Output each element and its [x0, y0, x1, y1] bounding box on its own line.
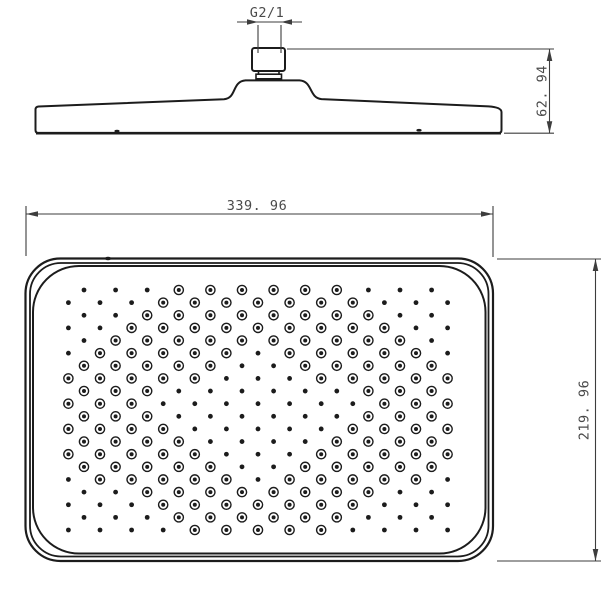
spray-nozzle-dot [429, 338, 434, 343]
depth-arrow-top [593, 259, 599, 271]
spray-nozzle-ring-center [177, 465, 181, 469]
spray-nozzle-dot [145, 515, 150, 520]
spray-nozzle-dot [303, 389, 308, 394]
spray-nozzle-ring-center [446, 427, 450, 431]
spray-nozzle-dot [287, 401, 292, 406]
spray-nozzle-dot [161, 528, 166, 533]
spray-nozzle-dot [366, 288, 371, 293]
spray-nozzle-dot [429, 490, 434, 495]
spray-nozzle-ring-center [240, 313, 244, 317]
spray-nozzle-ring-center [161, 427, 165, 431]
spray-nozzle-ring-center [288, 326, 292, 330]
spray-nozzle-ring-center [319, 528, 323, 532]
spray-nozzle-dot [271, 464, 276, 469]
spray-nozzle-ring-center [319, 477, 323, 481]
spray-nozzle-ring-center [161, 477, 165, 481]
spray-nozzle-ring-center [335, 339, 339, 343]
spray-nozzle-dot [398, 313, 403, 318]
spray-nozzle-ring-center [82, 389, 86, 393]
spray-nozzle-dot [334, 389, 339, 394]
spray-nozzle-dot [129, 528, 134, 533]
spray-nozzle-ring-center [256, 326, 260, 330]
spray-nozzle-ring-center [161, 452, 165, 456]
spray-nozzle-ring-center [351, 326, 355, 330]
width-arrow-right [481, 211, 493, 217]
spray-nozzle-ring-center [130, 376, 134, 380]
plan-view [26, 257, 494, 561]
spray-nozzle-ring-center [224, 477, 228, 481]
spray-nozzle-ring-center [66, 376, 70, 380]
spray-nozzle-dot [113, 313, 118, 318]
spray-nozzle-ring-center [272, 490, 276, 494]
spray-nozzle-dot [398, 490, 403, 495]
spray-nozzle-dot [129, 502, 134, 507]
spray-nozzle-ring-center [145, 414, 149, 418]
spray-nozzle-ring-center [288, 477, 292, 481]
spray-nozzle-ring-center [208, 364, 212, 368]
spray-nozzle-ring-center [193, 326, 197, 330]
spray-nozzle-dot [66, 528, 71, 533]
spray-nozzle-ring-center [145, 389, 149, 393]
spray-nozzle-ring-center [414, 452, 418, 456]
spray-nozzle-dot [208, 389, 213, 394]
spray-nozzle-dot [224, 452, 229, 457]
spray-nozzle-ring-center [161, 326, 165, 330]
spray-nozzle-ring-center [446, 402, 450, 406]
spray-nozzle-ring-center [224, 351, 228, 355]
spray-nozzle-ring-center [335, 465, 339, 469]
spray-nozzle-ring-center [98, 477, 102, 481]
spray-nozzle-dot [366, 515, 371, 520]
spray-nozzle-dot [429, 515, 434, 520]
spray-nozzle-dot [240, 389, 245, 394]
spray-nozzle-dot [287, 427, 292, 432]
spray-nozzle-ring-center [193, 301, 197, 305]
spray-nozzle-ring-center [398, 414, 402, 418]
width-arrow-left [26, 211, 38, 217]
spray-nozzle-dot [414, 502, 419, 507]
spray-nozzle-ring-center [351, 452, 355, 456]
spray-nozzle-ring-center [446, 452, 450, 456]
spray-nozzle-ring-center [288, 503, 292, 507]
spray-nozzle-dot [445, 300, 450, 305]
spray-nozzle-dot [224, 376, 229, 381]
spray-nozzle-dot [240, 414, 245, 419]
spray-nozzle-ring-center [114, 465, 118, 469]
connector-collar-lower [256, 74, 282, 79]
spray-nozzle-ring-center [351, 503, 355, 507]
spray-nozzle-ring-center [382, 427, 386, 431]
spray-nozzle-ring-center [366, 440, 370, 444]
spray-nozzle-dot [256, 427, 261, 432]
spray-nozzle-ring-center [224, 326, 228, 330]
spray-nozzle-ring-center [145, 364, 149, 368]
spray-nozzle-ring-center [208, 313, 212, 317]
spray-nozzle-ring-center [224, 301, 228, 305]
spray-nozzle-ring-center [303, 465, 307, 469]
spray-nozzle-ring-center [303, 313, 307, 317]
spray-nozzle-ring-center [256, 301, 260, 305]
spray-nozzle-dot [113, 288, 118, 293]
spray-nozzle-ring-center [430, 465, 434, 469]
spray-nozzle-dot [256, 376, 261, 381]
spray-nozzle-ring-center [303, 288, 307, 292]
spray-nozzle-ring-center [114, 440, 118, 444]
spray-nozzle-dot [414, 325, 419, 330]
spray-nozzle-ring-center [303, 515, 307, 519]
spray-nozzle-dot [82, 288, 87, 293]
spray-nozzle-dot [350, 401, 355, 406]
spray-nozzle-ring-center [98, 427, 102, 431]
height-arrow-bottom [547, 121, 553, 133]
spray-nozzle-ring-center [430, 414, 434, 418]
spray-nozzle-ring-center [114, 389, 118, 393]
spray-nozzle-ring-center [193, 528, 197, 532]
spray-nozzle-dot [382, 300, 387, 305]
spray-nozzle-dot [429, 288, 434, 293]
spray-nozzle-ring-center [414, 376, 418, 380]
spray-nozzle-ring-center [398, 339, 402, 343]
spray-nozzle-ring-center [366, 364, 370, 368]
spray-nozzle-dot [66, 502, 71, 507]
spray-nozzle-ring-center [177, 490, 181, 494]
spray-nozzle-ring-center [351, 376, 355, 380]
spray-nozzle-ring-center [303, 364, 307, 368]
spray-nozzle-ring-center [272, 313, 276, 317]
spray-nozzle-ring-center [398, 440, 402, 444]
dimension-depth: 219. 96 [497, 259, 601, 561]
spray-nozzle-ring-center [351, 351, 355, 355]
spray-nozzle-dot [240, 464, 245, 469]
spray-nozzle-ring-center [272, 515, 276, 519]
spray-nozzle-dot [66, 325, 71, 330]
spray-nozzle-ring-center [366, 414, 370, 418]
spray-nozzle-ring-center [335, 288, 339, 292]
spray-nozzle-dot [256, 477, 261, 482]
spray-nozzle-dot [192, 401, 197, 406]
spray-nozzle-ring-center [414, 477, 418, 481]
spray-nozzle-ring-center [82, 440, 86, 444]
spray-nozzle-ring-center [224, 503, 228, 507]
spray-nozzle-dot [445, 477, 450, 482]
spray-nozzle-dot [82, 515, 87, 520]
spray-nozzle-dot [98, 528, 103, 533]
spray-nozzle-ring-center [382, 402, 386, 406]
spray-nozzle-ring-center [98, 376, 102, 380]
spray-nozzle-ring-center [398, 389, 402, 393]
spray-nozzle-dot [82, 313, 87, 318]
spray-nozzle-ring-center [145, 339, 149, 343]
spray-nozzle-ring-center [303, 339, 307, 343]
spray-nozzle-ring-center [319, 376, 323, 380]
side-body-outline [36, 80, 502, 133]
spray-nozzle-dot [287, 376, 292, 381]
spray-nozzle-dot [287, 452, 292, 457]
spray-nozzle-dot [66, 477, 71, 482]
spray-nozzle-ring-center [240, 339, 244, 343]
spray-nozzle-dot [350, 528, 355, 533]
spray-nozzle-ring-center [288, 301, 292, 305]
spray-nozzle-ring-center [351, 301, 355, 305]
spray-nozzle-ring-center [177, 313, 181, 317]
spray-nozzle-ring-center [66, 452, 70, 456]
spray-nozzle-dot [319, 401, 324, 406]
spray-nozzle-ring-center [177, 339, 181, 343]
spray-nozzle-ring-center [208, 288, 212, 292]
spray-nozzle-dot [145, 288, 150, 293]
spray-nozzle-ring-center [335, 313, 339, 317]
spray-nozzle-ring-center [224, 528, 228, 532]
spray-nozzle-ring-center [335, 440, 339, 444]
spray-nozzle-ring-center [288, 351, 292, 355]
spray-nozzle-dot [398, 288, 403, 293]
spray-nozzle-dot [429, 313, 434, 318]
spray-nozzle-ring-center [130, 326, 134, 330]
spray-nozzle-ring-center [366, 490, 370, 494]
spray-nozzle-dot [445, 528, 450, 533]
spray-nozzle-ring-center [130, 427, 134, 431]
spray-nozzle-ring-center [161, 351, 165, 355]
spray-nozzle-dot [271, 439, 276, 444]
plan-face-edge [33, 266, 486, 554]
spray-nozzle-ring-center [319, 326, 323, 330]
spray-nozzle-ring-center [272, 288, 276, 292]
spray-nozzle-dot [382, 528, 387, 533]
spray-nozzle-ring-center [414, 351, 418, 355]
spray-nozzle-ring-center [193, 477, 197, 481]
spray-nozzle-ring-center [430, 364, 434, 368]
spray-nozzle-dot [66, 351, 71, 356]
spray-nozzle-dot [224, 427, 229, 432]
spray-nozzle-ring-center [208, 339, 212, 343]
spray-nozzle-ring-center [98, 351, 102, 355]
spray-nozzle-dot [208, 414, 213, 419]
spray-nozzle-ring-center [208, 515, 212, 519]
spray-nozzle-dot [334, 414, 339, 419]
spray-nozzle-ring-center [366, 389, 370, 393]
spray-nozzle-ring-center [66, 402, 70, 406]
spray-nozzle-ring-center [272, 339, 276, 343]
spray-nozzle-ring-center [82, 364, 86, 368]
spray-nozzle-dot [66, 300, 71, 305]
spray-nozzle-ring-center [366, 313, 370, 317]
spray-nozzle-ring-center [366, 465, 370, 469]
spray-nozzle-dot [398, 515, 403, 520]
side-view [36, 48, 502, 133]
spray-nozzle-ring-center [430, 389, 434, 393]
spray-nozzle-ring-center [319, 351, 323, 355]
spray-nozzle-ring-center [98, 452, 102, 456]
spray-nozzle-ring-center [319, 503, 323, 507]
spray-nozzle-dot [192, 427, 197, 432]
spray-nozzle-dot [240, 439, 245, 444]
spray-nozzle-ring-center [193, 351, 197, 355]
spray-nozzle-ring-center [114, 414, 118, 418]
spray-nozzle-ring-center [98, 402, 102, 406]
spray-nozzle-dot [414, 300, 419, 305]
spray-nozzle-ring-center [319, 452, 323, 456]
spray-nozzle-ring-center [177, 288, 181, 292]
spray-nozzle-ring-center [145, 440, 149, 444]
spray-nozzle-ring-center [303, 490, 307, 494]
spray-nozzle-ring-center [130, 477, 134, 481]
height-dim-label: 62. 94 [535, 65, 551, 117]
spray-nozzle-ring-center [240, 490, 244, 494]
spray-nozzle-dot [256, 401, 261, 406]
spray-nozzle-ring-center [161, 301, 165, 305]
spray-nozzle-dot [271, 389, 276, 394]
spray-nozzle-ring-center [398, 364, 402, 368]
spray-nozzle-ring-center [335, 490, 339, 494]
spray-nozzle-ring-center [145, 490, 149, 494]
spray-nozzle-ring-center [382, 477, 386, 481]
spray-nozzle-ring-center [414, 427, 418, 431]
spray-nozzle-ring-center [382, 326, 386, 330]
spray-nozzle-ring-center [398, 465, 402, 469]
spray-nozzle-dot [224, 401, 229, 406]
spray-nozzle-ring-center [240, 288, 244, 292]
depth-dim-label: 219. 96 [577, 380, 593, 440]
spray-nozzle-dot [256, 351, 261, 356]
spray-nozzle-ring-center [319, 301, 323, 305]
thread-dim-label: G2/1 [250, 5, 285, 21]
spray-nozzle-ring-center [335, 515, 339, 519]
side-nozzle-dot-left [114, 130, 119, 133]
spray-nozzle-ring-center [130, 452, 134, 456]
shower-head-drawing: G2/1 62. 94 339. 96 219. 96 [0, 0, 614, 600]
spray-nozzle-ring-center [130, 402, 134, 406]
spray-nozzle-ring-center [177, 515, 181, 519]
spray-nozzle-dot [271, 363, 276, 368]
spray-nozzle-ring-center [193, 452, 197, 456]
spray-nozzle-dot [445, 325, 450, 330]
spray-nozzle-ring-center [351, 477, 355, 481]
spray-nozzle-ring-center [351, 427, 355, 431]
dimension-thread: G2/1 [237, 5, 302, 53]
spray-nozzle-dot [319, 427, 324, 432]
spray-nozzle-ring-center [256, 528, 260, 532]
spray-nozzle-ring-center [256, 503, 260, 507]
spray-nozzle-dot [445, 351, 450, 356]
technical-drawing-canvas: G2/1 62. 94 339. 96 219. 96 [0, 0, 614, 600]
spray-nozzle-ring-center [161, 376, 165, 380]
dimension-width: 339. 96 [26, 198, 493, 257]
spray-nozzle-ring-center [366, 339, 370, 343]
spray-nozzle-dot [382, 502, 387, 507]
spray-nozzle-ring-center [414, 402, 418, 406]
spray-nozzle-ring-center [130, 351, 134, 355]
spray-nozzle-ring-center [240, 515, 244, 519]
spray-nozzle-ring-center [382, 351, 386, 355]
height-arrow-top [547, 49, 553, 61]
connector-nut [252, 48, 285, 71]
spray-nozzle-dot [445, 502, 450, 507]
spray-nozzle-dot [98, 325, 103, 330]
spray-nozzle-ring-center [177, 440, 181, 444]
spray-nozzle-ring-center [161, 503, 165, 507]
spray-nozzle-ring-center [193, 503, 197, 507]
spray-nozzle-dot [303, 414, 308, 419]
spray-nozzle-dot [256, 452, 261, 457]
spray-nozzle-dot [414, 528, 419, 533]
spray-nozzle-ring-center [446, 376, 450, 380]
spray-nozzle-dot [240, 363, 245, 368]
spray-nozzle-ring-center [82, 414, 86, 418]
spray-nozzle-ring-center [208, 465, 212, 469]
spray-nozzle-ring-center [114, 339, 118, 343]
spray-nozzle-ring-center [208, 490, 212, 494]
plan-mold-mark [105, 257, 111, 261]
spray-nozzle-ring-center [145, 465, 149, 469]
spray-nozzle-ring-center [114, 364, 118, 368]
spray-nozzle-dot [129, 300, 134, 305]
spray-nozzle-ring-center [177, 364, 181, 368]
spray-nozzle-ring-center [382, 376, 386, 380]
spray-nozzle-dot [176, 414, 181, 419]
spray-nozzle-ring-center [66, 427, 70, 431]
spray-nozzle-dot [82, 490, 87, 495]
spray-nozzle-dot [208, 439, 213, 444]
spray-nozzle-dot [271, 414, 276, 419]
spray-nozzle-ring-center [193, 376, 197, 380]
spray-nozzle-dot [98, 300, 103, 305]
spray-nozzle-ring-center [145, 313, 149, 317]
depth-arrow-bottom [593, 549, 599, 561]
spray-nozzle-dot [113, 490, 118, 495]
spray-nozzle-dot [303, 439, 308, 444]
spray-nozzle-dot [82, 338, 87, 343]
spray-nozzle-dot [176, 389, 181, 394]
spray-nozzle-dot [113, 515, 118, 520]
spray-nozzle-ring-center [382, 452, 386, 456]
spray-nozzle-ring-center [430, 440, 434, 444]
side-nozzle-dot-right [416, 129, 421, 132]
width-dim-label: 339. 96 [227, 198, 287, 214]
spray-nozzle-dot [98, 502, 103, 507]
spray-nozzle-ring-center [335, 364, 339, 368]
spray-nozzle-ring-center [82, 465, 86, 469]
spray-nozzle-ring-center [288, 528, 292, 532]
spray-nozzle-dot [161, 401, 166, 406]
